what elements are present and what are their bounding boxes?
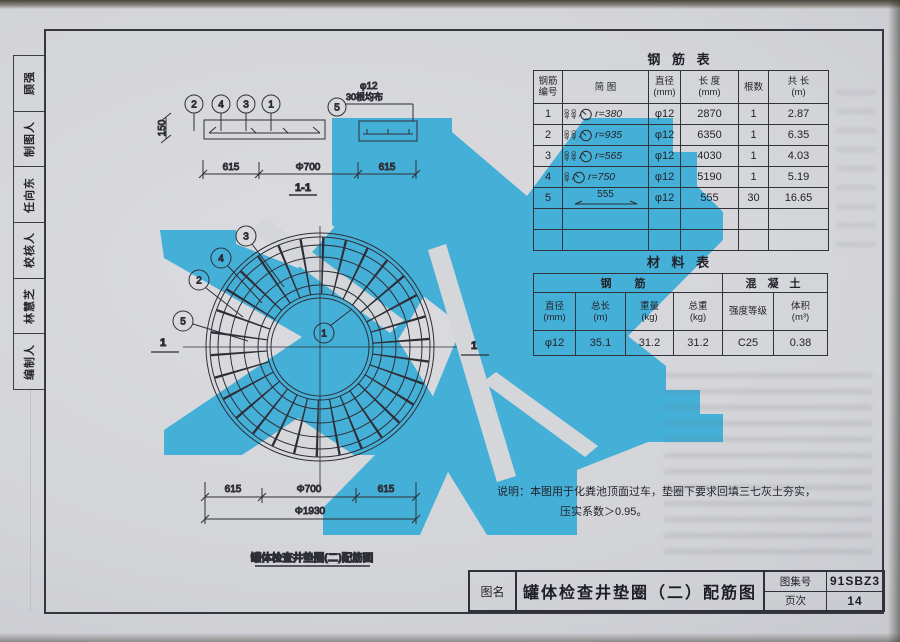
- bar-sketch-circular: 480 480r=380: [563, 104, 648, 124]
- plan-callout-3: 3: [243, 232, 249, 243]
- circular-bar-icon: [578, 107, 593, 122]
- bar-count-note: 30根均布: [346, 91, 383, 102]
- atlas-row: 图集号 91SBZ3: [765, 572, 883, 592]
- col-total-length: 共 长(m): [769, 71, 829, 104]
- circular-bar-icon: [578, 149, 593, 164]
- section-callout-5: 5: [334, 103, 340, 114]
- col-diameter: 直径(mm): [534, 293, 576, 331]
- dim-615-left: 615: [223, 162, 240, 173]
- group-concrete: 混 凝 土: [723, 274, 828, 293]
- rebar-table-title: 钢 筋 表: [533, 49, 828, 68]
- rebar-row-1: 1 480 480r=380 φ12287012.87: [534, 104, 829, 125]
- plan-dim-phi700: Φ700: [297, 484, 322, 495]
- height-dimension-150: 150: [157, 119, 168, 136]
- plan-section-mark-right: 1: [471, 340, 477, 352]
- page-number-label: 页次: [765, 592, 827, 611]
- bar-sketch-circular: 480r=750: [563, 167, 648, 187]
- dim-615-right: 615: [379, 162, 396, 173]
- plan-dim-phi1930: Φ1930: [295, 506, 326, 517]
- rebar-empty-row: [534, 209, 829, 230]
- drawing-name-label: 图名: [470, 572, 517, 610]
- section-callout-2: 2: [191, 100, 197, 111]
- circular-plan-view: 3 4 2 5 1 1 1 615 Φ700 615 Φ1930 罐体检查井垫圈…: [151, 226, 489, 566]
- title-block: 图名 罐体检查井垫圈（二）配筋图 图集号 91SBZ3 页次 14: [468, 570, 885, 612]
- page-row: 页次 14: [765, 592, 883, 611]
- dim-phi700: Φ700: [296, 162, 321, 173]
- material-header-row: 直径(mm) 总长(m) 重量(kg) 总重(kg) 强度等级 体积(m³): [534, 293, 828, 331]
- bar-sketch-circular: 480 480r=935: [563, 125, 648, 145]
- col-strength-grade: 强度等级: [723, 293, 774, 331]
- col-count: 根数: [739, 71, 769, 104]
- note-line-1: 说明：本图用于化粪池顶面过车，垫圈下要求回填三七灰土夯实，: [497, 482, 832, 502]
- photo-edge-right: [888, 0, 900, 642]
- rebar-row-5: 5 555 φ125553016.65: [534, 188, 829, 209]
- plan-dim-615-right: 615: [378, 484, 395, 495]
- plan-callout-2: 2: [196, 276, 202, 287]
- bar-diameter-note: φ12: [360, 81, 378, 92]
- plan-callout-1: 1: [321, 329, 327, 340]
- plan-section-mark-left: 1: [160, 337, 166, 349]
- col-weight: 重量(kg): [626, 293, 674, 331]
- photo-edge-bottom: [0, 633, 900, 642]
- rebar-row-4: 4 480r=750 φ12519015.19: [534, 167, 829, 188]
- rebar-row-3: 3 480 480r=565 φ12403014.03: [534, 146, 829, 167]
- drawing-title: 罐体检查井垫圈（二）配筋图: [517, 572, 763, 610]
- title-block-right: 图集号 91SBZ3 页次 14: [763, 572, 883, 610]
- section-callout-3: 3: [243, 100, 249, 111]
- atlas-number-value: 91SBZ3: [827, 572, 883, 591]
- photo-edge-top: [0, 0, 900, 9]
- atlas-number-label: 图集号: [765, 572, 827, 591]
- material-table-title: 材 料 表: [533, 252, 827, 271]
- section-caption-1-1: 1-1: [295, 182, 311, 194]
- page-number-value: 14: [827, 592, 883, 611]
- photographed-drawing-page: 顾强 制图人 任向东 校核人 林慧芝 编制人: [0, 0, 900, 642]
- plan-caption: 罐体检查井垫圈(二)配筋图: [250, 551, 374, 564]
- col-total-length: 总长(m): [576, 293, 626, 331]
- col-volume: 体积(m³): [774, 293, 828, 331]
- notes-block: 说明：本图用于化粪池顶面过车，垫圈下要求回填三七灰土夯实， 压实系数＞0.95。: [497, 482, 832, 522]
- section-callout-4: 4: [218, 100, 224, 111]
- plan-callout-5: 5: [180, 317, 186, 328]
- col-total-weight: 总重(kg): [674, 293, 723, 331]
- rebar-row-2: 2 480 480r=935 φ12635016.35: [534, 125, 829, 146]
- group-steel: 钢 筋: [534, 274, 723, 293]
- circular-bar-icon: [571, 170, 586, 185]
- material-table: 钢 筋 混 凝 土 直径(mm) 总长(m) 重量(kg) 总重(kg) 强度等…: [533, 273, 828, 356]
- circular-bar-icon: [578, 128, 593, 143]
- col-sketch: 简 图: [563, 71, 649, 104]
- plan-callout-4: 4: [218, 254, 224, 265]
- section-callout-1: 1: [268, 100, 274, 111]
- plan-dim-615-left: 615: [225, 484, 242, 495]
- rebar-table: 钢筋编号 简 图 直径(mm) 长 度(mm) 根数 共 长(m) 1 480 …: [533, 70, 829, 251]
- section-1-1-view: 2 4 3 1 5 φ12 30根均布 150 615 Φ700 615 1-1: [157, 81, 420, 195]
- rebar-empty-row: [534, 230, 829, 251]
- material-group-row: 钢 筋 混 凝 土: [534, 274, 828, 293]
- straight-bar-icon: [573, 200, 639, 207]
- bar-sketch-circular: 480 480r=565: [563, 146, 648, 166]
- col-length: 长 度(mm): [681, 71, 739, 104]
- col-diameter: 直径(mm): [649, 71, 681, 104]
- rebar-header-row: 钢筋编号 简 图 直径(mm) 长 度(mm) 根数 共 长(m): [534, 71, 829, 104]
- note-line-2: 压实系数＞0.95。: [497, 502, 832, 522]
- col-bar-no: 钢筋编号: [534, 71, 563, 104]
- bar-sketch-straight: 555: [563, 188, 648, 208]
- material-data-row: φ1235.131.2 31.2C250.38: [534, 331, 828, 356]
